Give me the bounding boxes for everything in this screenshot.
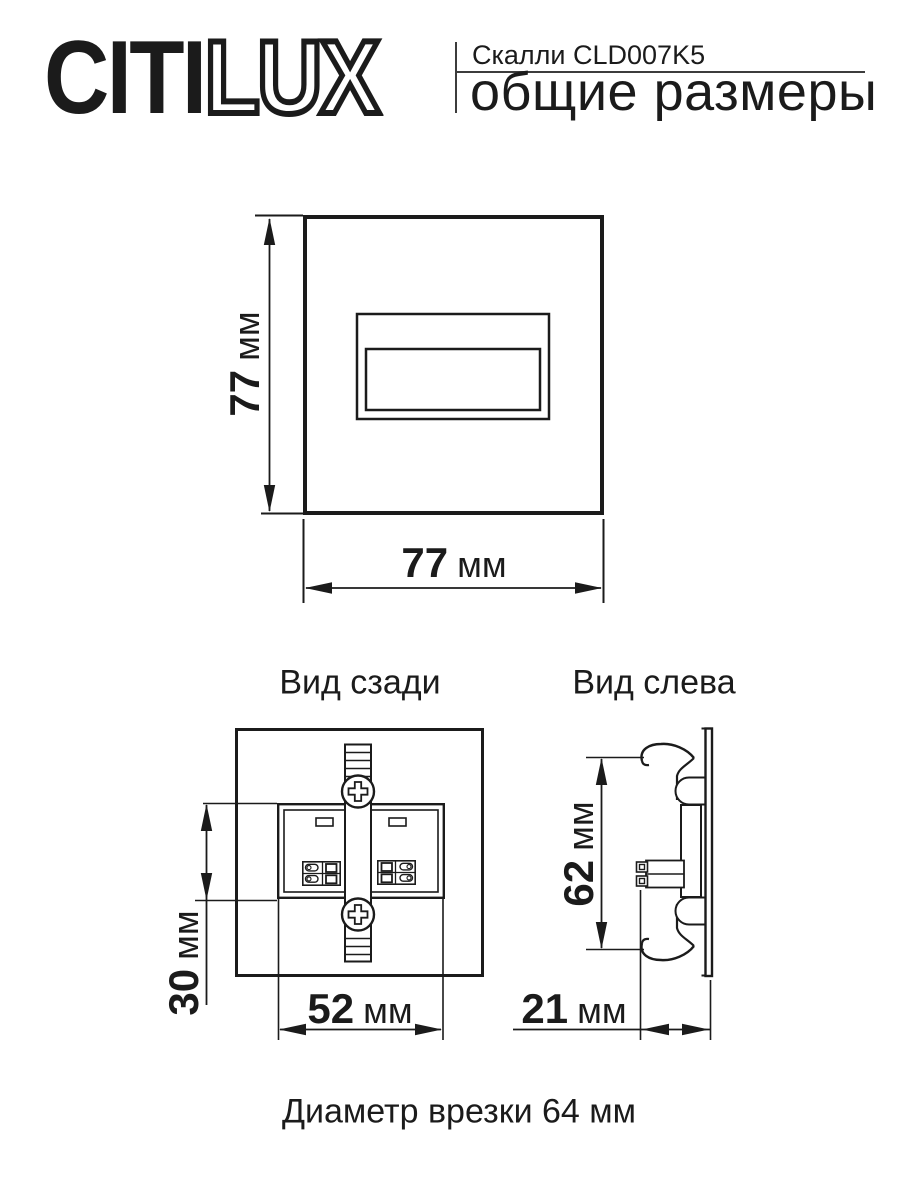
dimension-arrow <box>264 485 275 512</box>
rear-height-label: 30мм <box>160 910 208 1015</box>
dimension-arrow <box>201 804 212 831</box>
left-height-label: 62мм <box>555 801 603 906</box>
front-window-outer <box>357 314 549 419</box>
rear-view-title: Вид сзади <box>279 664 440 703</box>
front-width-label: 77мм <box>401 539 506 587</box>
vent-slot-left <box>316 818 333 826</box>
dimension-arrow <box>264 218 275 245</box>
vent-slot-right <box>389 818 406 826</box>
dimension-arrow <box>305 582 332 593</box>
terminal-block-side <box>637 861 685 888</box>
faceplate-edge <box>702 729 713 977</box>
dimension-arrow <box>279 1024 306 1035</box>
dimension-arrow <box>682 1024 709 1035</box>
terminal-block-right <box>378 861 415 884</box>
terminal-block-left <box>303 862 340 885</box>
screw-boss-bottom <box>676 898 706 925</box>
dimension-arrow <box>575 582 602 593</box>
cutout-diameter-note: Диаметр врезки 64 мм <box>282 1093 636 1132</box>
front-height-label: 77мм <box>221 311 269 416</box>
front-window-inner <box>366 349 540 410</box>
dimension-arrow <box>596 758 607 785</box>
phillips-screw-icon <box>342 899 374 931</box>
left-depth-label: 21мм <box>521 985 626 1033</box>
dimension-arrow <box>596 922 607 949</box>
front-faceplate-outline <box>305 217 602 513</box>
dimension-arrow <box>415 1024 442 1035</box>
phillips-screw-icon <box>342 776 374 808</box>
dimension-sheet: CITILUX Скалли CLD007K5 общие размеры <box>0 0 899 1200</box>
screw-boss-top <box>676 778 706 805</box>
technical-drawing <box>0 0 899 1200</box>
dimension-arrow <box>201 873 212 900</box>
dimension-arrow <box>642 1024 669 1035</box>
rear-width-label: 52мм <box>307 985 412 1033</box>
left-view-title: Вид слева <box>572 664 735 703</box>
